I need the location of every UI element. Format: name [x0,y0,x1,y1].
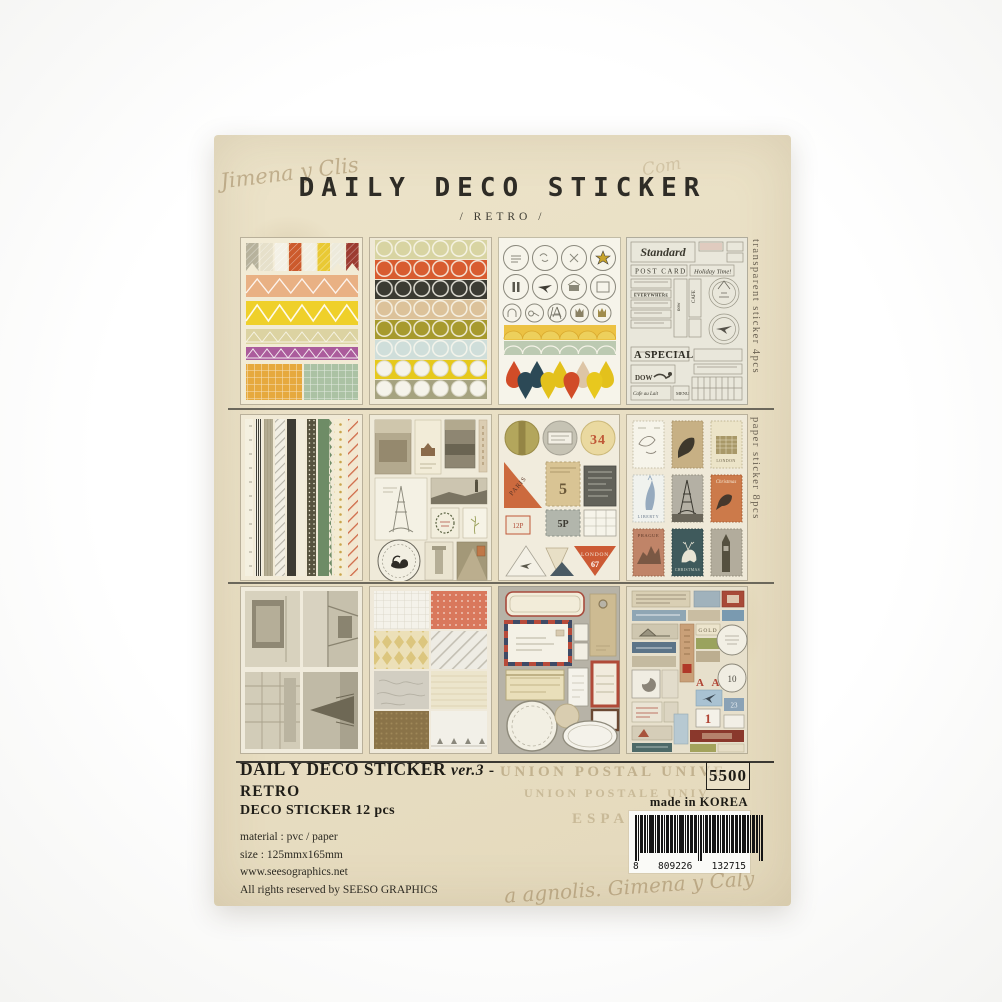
origin-label: made in KOREA [650,795,748,810]
product-info-block: DAIL Y DECO STICKER ver.3 - RETRO DECO S… [240,759,540,899]
barcode-bar [685,815,687,853]
product-rights: All rights reserved by SEESO GRAPHICS [240,882,540,900]
barcode-bar [674,815,676,853]
barcode-bar [752,815,755,853]
barcode-bars [635,815,764,861]
barcode-bar [694,815,697,853]
svg-text:Christmas: Christmas [716,480,737,485]
barcode-bar [666,815,669,853]
package-subtitle: / RETRO / [214,211,791,223]
svg-text:5: 5 [559,481,567,498]
svg-text:POST CARD: POST CARD [635,268,687,276]
barcode: 8 809226 132715 [629,811,750,873]
barcode-bar [677,815,679,853]
barcode-bar [687,815,689,853]
barcode-bar [712,815,717,853]
barcode-digit-group: 809226 [658,861,692,872]
sheet-postage-stamps: LONDON LIBERTY Christmas PRAGUE CHRISTMA… [626,414,748,581]
svg-text:now: now [677,302,682,311]
barcode-bar [698,815,700,861]
svg-text:MENU: MENU [676,391,690,396]
product-size: size : 125mmx165mm [240,847,540,865]
sheet-ticket-badges: 34 PARIS 5 5P 12P [498,414,620,581]
barcode-bar [761,815,763,861]
barcode-bar [739,815,741,853]
barcode-bar [640,815,643,853]
svg-text:CHRISTMAS: CHRISTMAS [675,568,700,572]
badge-circles: 34 [505,421,615,455]
collage-cards [375,420,487,581]
barcode-bar [647,815,649,853]
barcode-bar [747,815,749,853]
barcode-bar [690,815,693,853]
sheet-label-frames [498,586,620,754]
sheet-pattern-squares [369,586,492,754]
svg-text:34: 34 [590,433,606,448]
svg-text:Standard: Standard [640,245,686,259]
barcode-bar [722,815,725,853]
svg-text:A SPECIAL: A SPECIAL [634,350,694,361]
barcode-bar [664,815,666,853]
barcode-bar [731,815,734,853]
scallop-strips [504,325,616,355]
svg-text:PRAGUE: PRAGUE [638,533,659,538]
svg-text:GOLD: GOLD [698,628,717,634]
barcode-bar [661,815,663,853]
sheet-postcard-labels: Standard POST CARD Holiday Time! EVERYWH… [626,237,748,405]
barcode-bar [644,815,646,853]
barcode-bar [679,815,684,853]
barcode-bar [700,815,702,861]
labels [506,592,618,751]
svg-text:Holiday Time!: Holiday Time! [693,269,731,276]
barcode-bar [638,815,640,861]
sticker-package: Jimena y Clis Com a agnolis. Gimena y Ca… [214,135,791,906]
product-subtitle: DECO STICKER 12 pcs [240,803,540,819]
barcode-bar [726,815,728,853]
product-photo-stage: Jimena y Clis Com a agnolis. Gimena y Ca… [0,0,1002,1002]
sheet-stamp-icons-drops [498,237,621,405]
barcode-bar [670,815,673,853]
svg-text:1: 1 [705,711,712,726]
svg-text:LONDON: LONDON [581,552,609,558]
svg-text:10: 10 [728,674,738,684]
barcode-bar [756,815,758,853]
package-title: DAILY DECO STICKER [214,173,791,203]
barcode-digits: 8 809226 132715 [629,861,750,872]
product-version: ver.3 [451,762,484,779]
svg-text:23: 23 [731,702,739,710]
barcode-bar [720,815,722,853]
barcode-bar [657,815,660,853]
sheet-ticket-collage: GOLD A A 10 23 1 [626,586,748,754]
barcode-bar [717,815,719,853]
product-website: www.seesographics.net [240,864,540,882]
barcode-bar [729,815,731,853]
svg-text:EVERYWHERE: EVERYWHERE [634,293,669,298]
barcode-digit-group: 132715 [712,861,746,872]
sheet-vintage-photos [240,586,363,754]
sheet-photo-collage [369,414,492,581]
barcode-bar [705,815,708,853]
sheet-circle-rows [369,237,492,405]
sheet-vertical-tapes [240,414,363,581]
side-label-transparent-sticker: transparent sticker 4pcs [750,239,761,374]
price-box: 5500 [706,762,750,790]
barcode-bar [649,815,654,853]
barcode-bar [635,815,637,861]
tape-strips [245,419,358,576]
svg-text:LONDON: LONDON [716,458,735,463]
barcode-bar [759,815,761,861]
sheet-washi-tape-strips [240,237,363,405]
banner-strips [246,243,359,271]
barcode-bar [703,815,705,853]
barcode-bar [735,815,738,853]
product-title-line: DAIL Y DECO STICKER ver.3 - RETRO [240,759,540,801]
row-divider-line [228,582,774,584]
product-material: material : pvc / paper [240,829,540,847]
svg-text:DOW: DOW [635,374,653,382]
svg-text:Cafe au Lait: Cafe au Lait [633,392,659,397]
watermark-line3: ESPA [572,811,629,828]
svg-text:LIBERTY: LIBERTY [638,514,660,519]
barcode-bar [655,815,657,853]
svg-text:12P: 12P [513,522,524,530]
barcode-bar [750,815,752,853]
barcode-bar [709,815,711,853]
svg-text:67: 67 [591,560,599,569]
barcode-bar [742,815,747,853]
barcode-digit-group: 8 [633,861,639,872]
svg-text:CAFE: CAFE [692,290,697,303]
svg-text:5P: 5P [557,519,568,530]
side-label-paper-sticker: paper sticker 8pcs [750,417,761,520]
grid-squares [246,364,358,400]
stamps: LONDON LIBERTY Christmas PRAGUE CHRISTMA… [633,421,742,576]
row-divider-line [228,408,774,410]
zigzag-tapes [246,275,358,360]
product-title: DAIL Y DECO STICKER [240,759,446,779]
